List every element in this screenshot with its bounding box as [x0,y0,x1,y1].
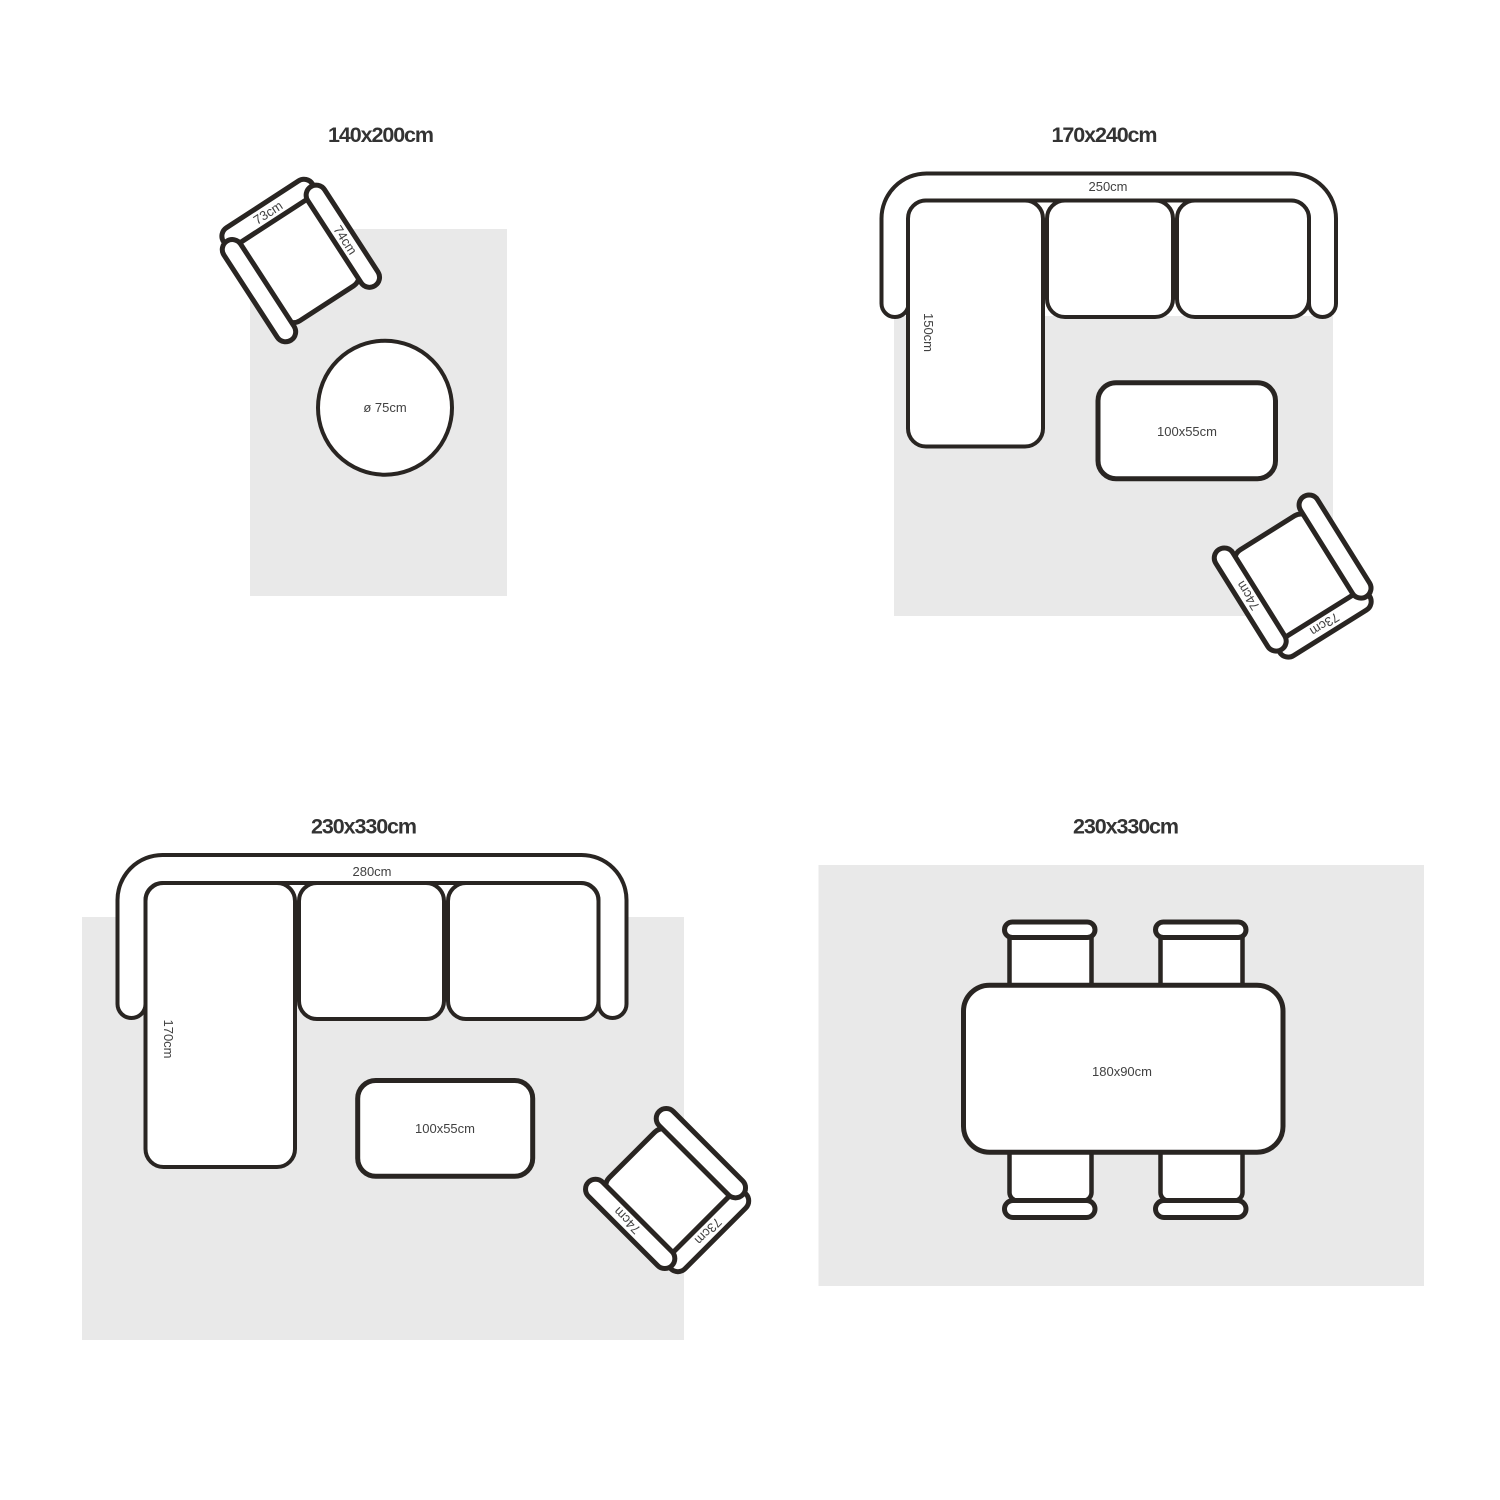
svg-text:250cm: 250cm [1088,179,1127,194]
svg-text:140x200cm: 140x200cm [328,123,433,147]
svg-text:ø 75cm: ø 75cm [363,400,406,415]
svg-text:180x90cm: 180x90cm [1092,1064,1152,1079]
svg-text:100x55cm: 100x55cm [1157,424,1217,439]
svg-text:170x240cm: 170x240cm [1052,123,1157,147]
svg-text:100x55cm: 100x55cm [415,1121,475,1136]
svg-text:170cm: 170cm [161,1019,176,1058]
svg-text:280cm: 280cm [352,864,391,879]
svg-text:230x330cm: 230x330cm [311,815,416,839]
svg-text:230x330cm: 230x330cm [1073,815,1178,839]
svg-text:150cm: 150cm [921,313,936,352]
